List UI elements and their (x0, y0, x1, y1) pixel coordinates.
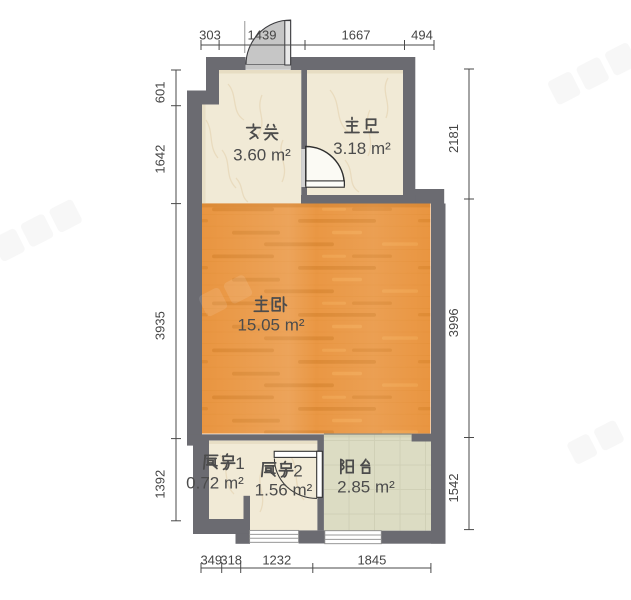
svg-text:349: 349 (200, 553, 222, 568)
svg-text:303: 303 (199, 28, 221, 43)
svg-text:1439: 1439 (248, 28, 277, 43)
svg-text:1667: 1667 (342, 28, 371, 43)
svg-text:3.18 m²: 3.18 m² (333, 139, 391, 158)
svg-text:0.72 m²: 0.72 m² (186, 474, 244, 493)
svg-text:15.05 m²: 15.05 m² (237, 316, 304, 335)
svg-text:3.60 m²: 3.60 m² (233, 146, 291, 165)
svg-text:1392: 1392 (153, 470, 168, 499)
svg-text:2.85 m²: 2.85 m² (337, 478, 395, 497)
svg-text:1642: 1642 (153, 145, 168, 174)
svg-text:494: 494 (411, 28, 433, 43)
svg-text:2: 2 (293, 462, 302, 481)
svg-text:601: 601 (153, 82, 168, 104)
svg-text:1: 1 (235, 454, 244, 473)
svg-text:1.56 m²: 1.56 m² (255, 481, 313, 500)
svg-text:2181: 2181 (446, 124, 461, 153)
svg-text:1542: 1542 (446, 474, 461, 503)
svg-text:3935: 3935 (153, 311, 168, 340)
svg-text:1845: 1845 (357, 553, 386, 568)
svg-text:1232: 1232 (262, 553, 291, 568)
svg-text:318: 318 (220, 553, 242, 568)
svg-text:3996: 3996 (446, 308, 461, 337)
